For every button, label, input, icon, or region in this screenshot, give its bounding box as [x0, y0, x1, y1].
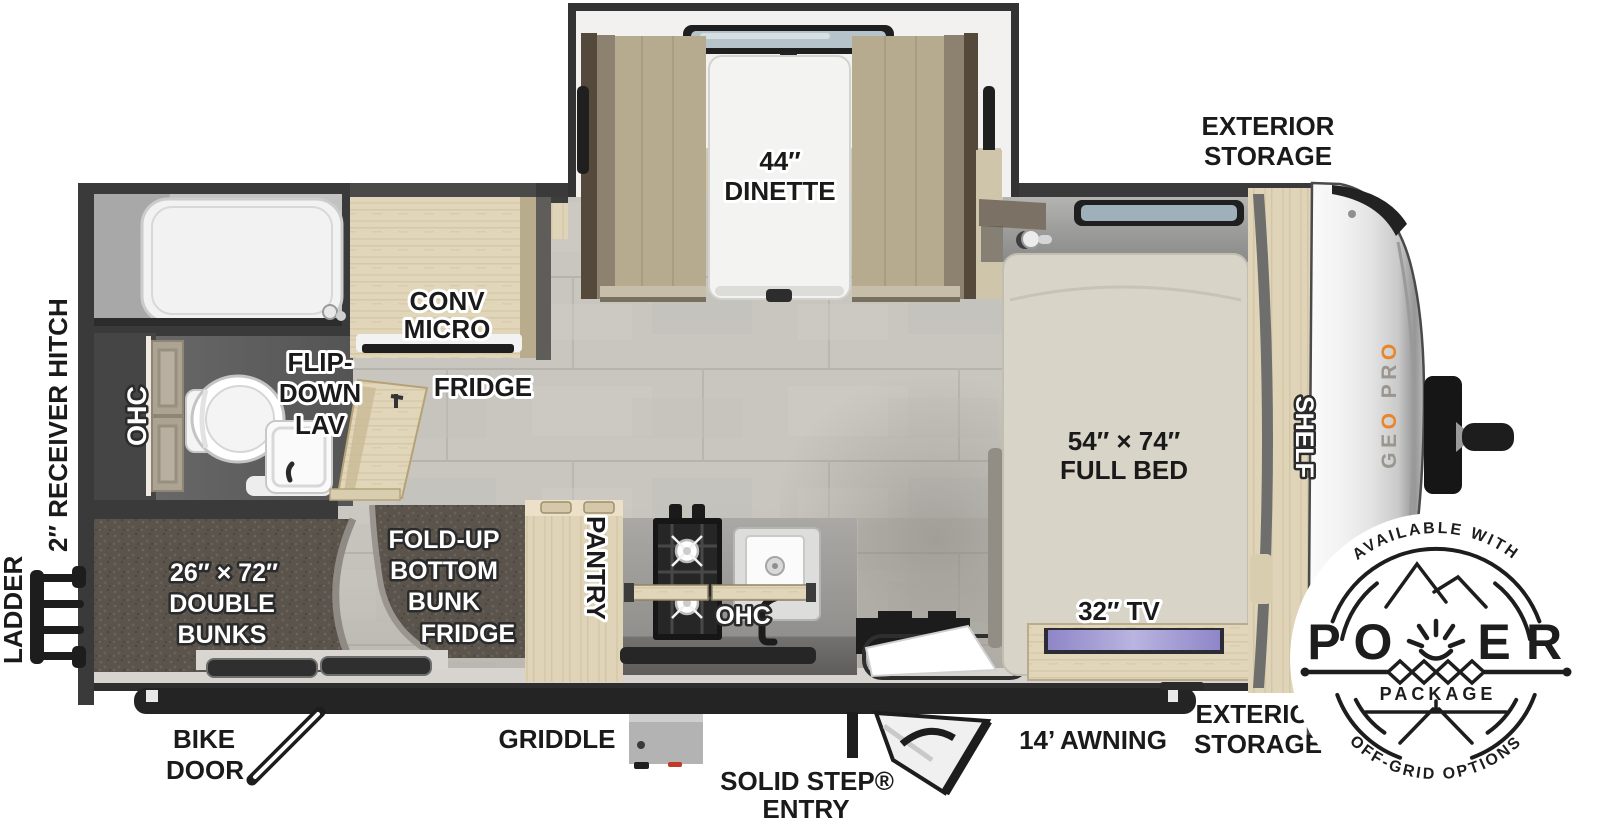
svg-text:FRIDGE: FRIDGE [421, 620, 515, 648]
svg-text:GRIDDLE: GRIDDLE [499, 724, 616, 754]
svg-text:FOLD-UP: FOLD-UP [388, 526, 499, 554]
svg-text:OHC: OHC [122, 386, 152, 446]
svg-text:SHELF: SHELF [1290, 396, 1318, 478]
svg-text:P: P [1307, 614, 1340, 670]
svg-text:SOLID STEP®: SOLID STEP® [720, 766, 894, 796]
svg-text:BOTTOM: BOTTOM [390, 557, 498, 585]
svg-text:LAV: LAV [295, 410, 346, 440]
svg-text:ENTRY: ENTRY [762, 794, 849, 823]
svg-text:44″: 44″ [759, 146, 800, 176]
svg-text:STORAGE: STORAGE [1194, 729, 1322, 759]
svg-text:PANTRY: PANTRY [581, 516, 611, 620]
svg-text:DOWN: DOWN [279, 378, 361, 408]
svg-text:DINETTE: DINETTE [724, 176, 835, 206]
svg-text:14’ AWNING: 14’ AWNING [1019, 725, 1167, 755]
svg-text:BIKE: BIKE [173, 724, 235, 754]
svg-text:O: O [1354, 614, 1393, 670]
svg-text:CONV: CONV [409, 286, 485, 316]
svg-text:PACKAGE: PACKAGE [1380, 684, 1497, 704]
svg-text:EXTERIOR: EXTERIOR [1202, 111, 1335, 141]
svg-text:2″ RECEIVER HITCH: 2″ RECEIVER HITCH [43, 298, 73, 552]
svg-text:E: E [1477, 614, 1510, 670]
svg-text:FULL BED: FULL BED [1060, 455, 1188, 485]
svg-text:32″ TV: 32″ TV [1078, 596, 1160, 626]
svg-text:FLIP-: FLIP- [288, 347, 353, 377]
svg-text:GEO PRO: GEO PRO [1378, 339, 1401, 469]
svg-text:BUNKS: BUNKS [178, 621, 267, 649]
svg-text:FRIDGE: FRIDGE [434, 372, 532, 402]
svg-text:54″ × 74″: 54″ × 74″ [1068, 426, 1180, 456]
svg-text:MICRO: MICRO [404, 314, 491, 344]
svg-text:BUNK: BUNK [408, 588, 480, 616]
svg-text:STORAGE: STORAGE [1204, 141, 1332, 171]
svg-text:DOOR: DOOR [166, 755, 244, 785]
svg-text:26″ × 72″: 26″ × 72″ [170, 559, 278, 587]
svg-text:R: R [1526, 614, 1562, 670]
svg-text:OHC: OHC [715, 602, 771, 630]
svg-text:DOUBLE: DOUBLE [169, 590, 275, 618]
svg-text:LADDER: LADDER [0, 555, 28, 664]
